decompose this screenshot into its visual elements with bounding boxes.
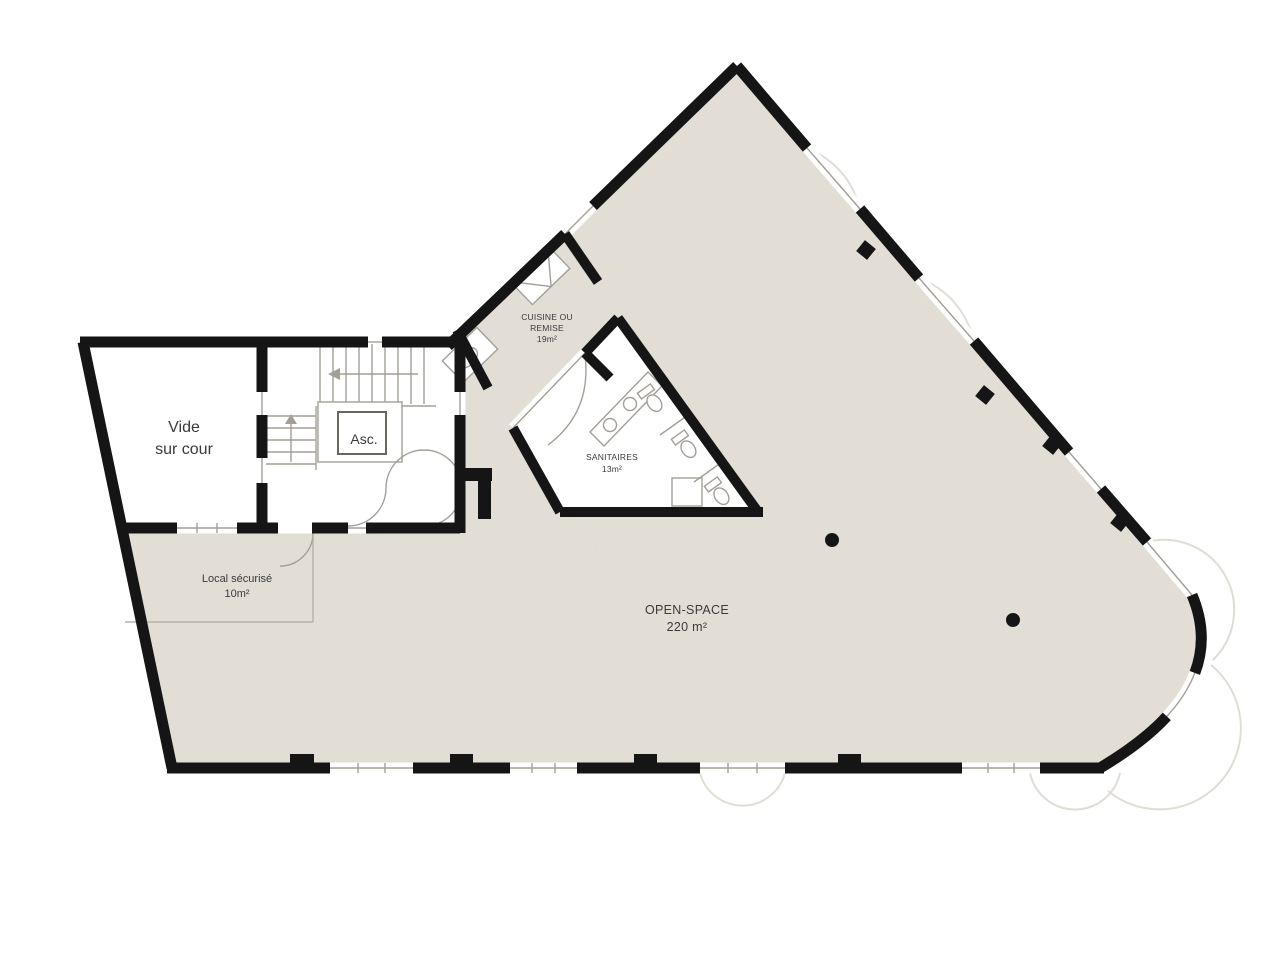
local-securise-label: Local sécurisé xyxy=(202,573,272,585)
elevator-label: Asc. xyxy=(350,431,377,447)
column-dot xyxy=(1006,613,1020,627)
stair-block-floor xyxy=(83,342,460,528)
wall-jog xyxy=(478,481,491,519)
floor-plan-svg: Vide sur cour Asc. CUISINE OU REMISE 19m… xyxy=(0,0,1280,960)
swing-arc xyxy=(1030,773,1120,809)
vide-sur-cour-label: sur cour xyxy=(155,441,213,458)
wall-jog xyxy=(458,468,492,481)
sanitaires-area: 13m² xyxy=(602,464,622,474)
column-dot xyxy=(825,533,839,547)
floor-plan-page: Vide sur cour Asc. CUISINE OU REMISE 19m… xyxy=(0,0,1280,960)
cuisine-area: 19m² xyxy=(537,334,557,344)
swing-arc xyxy=(700,773,785,806)
open-space-area: 220 m² xyxy=(667,620,708,634)
sanitaires-label: SANITAIRES xyxy=(586,452,638,462)
cuisine-label: REMISE xyxy=(530,323,564,333)
open-space-label: OPEN-SPACE xyxy=(645,603,729,617)
cuisine-label: CUISINE OU xyxy=(521,312,573,322)
vide-sur-cour-label: Vide xyxy=(168,419,200,436)
local-securise-area: 10m² xyxy=(224,588,249,600)
